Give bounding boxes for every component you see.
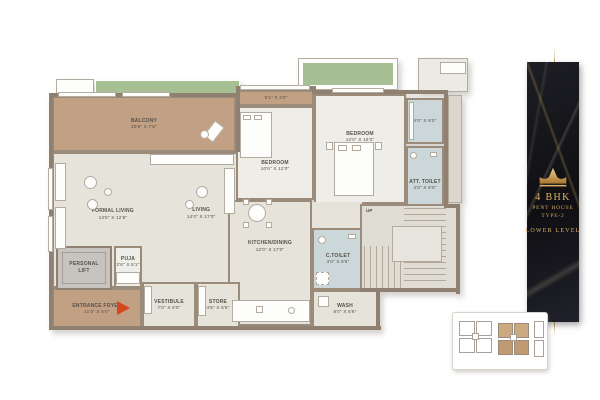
sofa	[55, 163, 66, 201]
sofa	[224, 168, 235, 214]
room-dims: 12'0" X 17'0"	[248, 247, 292, 253]
room-name: KITCHEN/DINING	[248, 240, 292, 247]
dining-chair	[243, 199, 249, 205]
panel-subtitle-2: TYPE-2	[541, 213, 564, 219]
room-personal-lift: PERSONAL LIFT	[56, 246, 112, 290]
room-label: 9'1" X 2'0"	[264, 95, 287, 101]
side-table	[200, 130, 209, 139]
room-balcony-strip: 9'1" X 2'0"	[238, 90, 314, 106]
shoe-cabinet	[144, 286, 152, 314]
dining-chair	[243, 222, 249, 228]
armchair	[84, 176, 97, 189]
room-label: PERSONAL LIFT	[67, 261, 101, 275]
room-dims: 4'6" X 6'6"	[206, 305, 229, 311]
neighbor-structure-inner	[440, 62, 466, 74]
wall-wash-right	[376, 290, 380, 330]
keyplan-unit	[534, 340, 544, 357]
window	[332, 88, 384, 93]
room-name: BEDROOM	[261, 160, 290, 167]
room-dims: 7'0" X 6'0"	[154, 305, 184, 311]
nightstand	[375, 142, 382, 150]
window	[48, 168, 53, 210]
room-label: ENTRANCE FOYER 11'0" X 6'0"	[72, 303, 121, 316]
room-dims: 10'6" X 12'0"	[261, 166, 290, 172]
keyplan-unit-highlighted	[498, 340, 513, 355]
window	[58, 92, 116, 97]
sink-icon	[288, 307, 295, 314]
dining-table	[248, 204, 266, 222]
shower-area	[316, 272, 329, 285]
room-name: PERSONAL LIFT	[67, 261, 101, 275]
room-label: KITCHEN/DINING 12'0" X 17'0"	[248, 240, 292, 253]
stair-up-label: UP	[366, 208, 372, 213]
room-name: FORMAL LIVING	[69, 208, 157, 215]
pillow	[254, 115, 262, 120]
brand-panel: 4 BHK PENT HOUSE TYPE-2 LOWER LEVEL	[527, 62, 579, 322]
room-dims: 8'0" X 6'6"	[333, 309, 356, 315]
wall-stair-right	[456, 204, 460, 294]
room-name: C.TOILET	[326, 253, 350, 260]
floor-plan-page: BALCONY 20'6" X 7'5" 9'1" X 2'0" FORMAL …	[0, 0, 600, 400]
washbasin-icon	[348, 234, 356, 239]
room-dims: 2'6" X 5'1"	[116, 262, 139, 268]
room-name: WASH	[333, 303, 356, 310]
room-dims: 11'0" X 6'0"	[72, 309, 121, 315]
dining-chair	[266, 222, 272, 228]
room-dims: 4'0" X 8'0"	[409, 185, 440, 191]
pillow	[243, 115, 251, 120]
room-label: WASH 8'0" X 6'6"	[333, 303, 356, 316]
room-name: BALCONY	[131, 118, 157, 125]
pillow	[338, 145, 347, 151]
washbasin-icon	[430, 152, 437, 157]
dining-chair	[266, 199, 272, 205]
window	[48, 216, 53, 252]
room-name: VESTIBULE	[154, 299, 184, 306]
room-label: C.TOILET 4'0" X 6'6"	[326, 253, 350, 266]
panel-subtitle-1: PENT HOUSE	[532, 205, 573, 211]
room-label-formal-living: FORMAL LIVING 13'6" X 12'8"	[69, 208, 157, 221]
room-label: 4'0" X 8'0"	[413, 118, 436, 124]
panel-level-label: LOWER LEVEL	[525, 228, 580, 234]
room-dims: 20'6" X 7'5"	[131, 124, 157, 130]
corridor	[312, 202, 362, 230]
window	[122, 92, 170, 97]
room-name: STORE	[206, 299, 229, 306]
room-dims: 9'1" X 2'0"	[264, 95, 287, 101]
room-label: BEDROOM 10'6" X 12'0"	[261, 160, 290, 173]
keyplan-unit	[534, 321, 544, 338]
room-dims: 4'0" X 8'0"	[413, 118, 436, 124]
armchair	[196, 186, 208, 198]
pillow	[352, 145, 361, 151]
room-label: BALCONY 20'6" X 7'5"	[131, 118, 157, 131]
room-name: ENTRANCE FOYER	[72, 303, 121, 310]
toilet-wc-icon	[318, 236, 326, 244]
room-label: VESTIBULE 7'0" X 6'0"	[154, 299, 184, 312]
crown-icon	[538, 166, 568, 188]
service-shaft	[448, 95, 462, 203]
room-label: PUJA 2'6" X 5'1"	[116, 256, 139, 269]
keyplan-core	[472, 333, 479, 340]
kitchen-counter	[232, 300, 310, 322]
wall-stair-bottom	[360, 288, 460, 292]
room-dims: 13'6" X 12'8"	[69, 215, 157, 221]
toilet-wc-icon	[410, 152, 417, 159]
armchair	[87, 199, 98, 210]
storage-shelf	[198, 286, 206, 316]
stair-landing	[392, 226, 442, 262]
panel-title: 4 BHK	[535, 192, 571, 203]
armchair	[185, 200, 194, 209]
keyplan-card	[452, 312, 548, 370]
puja-cabinet	[116, 272, 140, 284]
sofa	[150, 154, 234, 165]
keyplan-unit-highlighted	[514, 340, 529, 355]
keyplan-unit	[476, 338, 492, 353]
coffee-table	[104, 188, 112, 196]
room-name: BEDROOM	[346, 131, 375, 138]
room-dims: 14'0" X 17'0"	[168, 214, 234, 220]
wall-left	[49, 94, 53, 330]
planter-green-right	[302, 62, 394, 86]
wall-bottom	[49, 326, 381, 330]
keyplan-core	[510, 334, 517, 341]
wall-right-upper	[444, 90, 448, 208]
room-name: PUJA	[116, 256, 139, 263]
room-label: ATT. TOILET 4'0" X 8'0"	[409, 179, 440, 192]
room-name: ATT. TOILET	[409, 179, 440, 186]
window	[240, 85, 310, 90]
wardrobe	[409, 102, 414, 140]
room-balcony: BALCONY 20'6" X 7'5"	[52, 96, 236, 152]
nightstand	[326, 142, 333, 150]
room-dims: 4'0" X 6'6"	[326, 259, 350, 265]
washing-machine-icon	[318, 296, 329, 307]
entry-arrow-icon	[117, 301, 130, 315]
sofa	[55, 207, 66, 249]
room-label: STORE 4'6" X 6'6"	[206, 299, 229, 312]
hob-icon	[256, 306, 263, 313]
keyplan-unit	[459, 338, 475, 353]
